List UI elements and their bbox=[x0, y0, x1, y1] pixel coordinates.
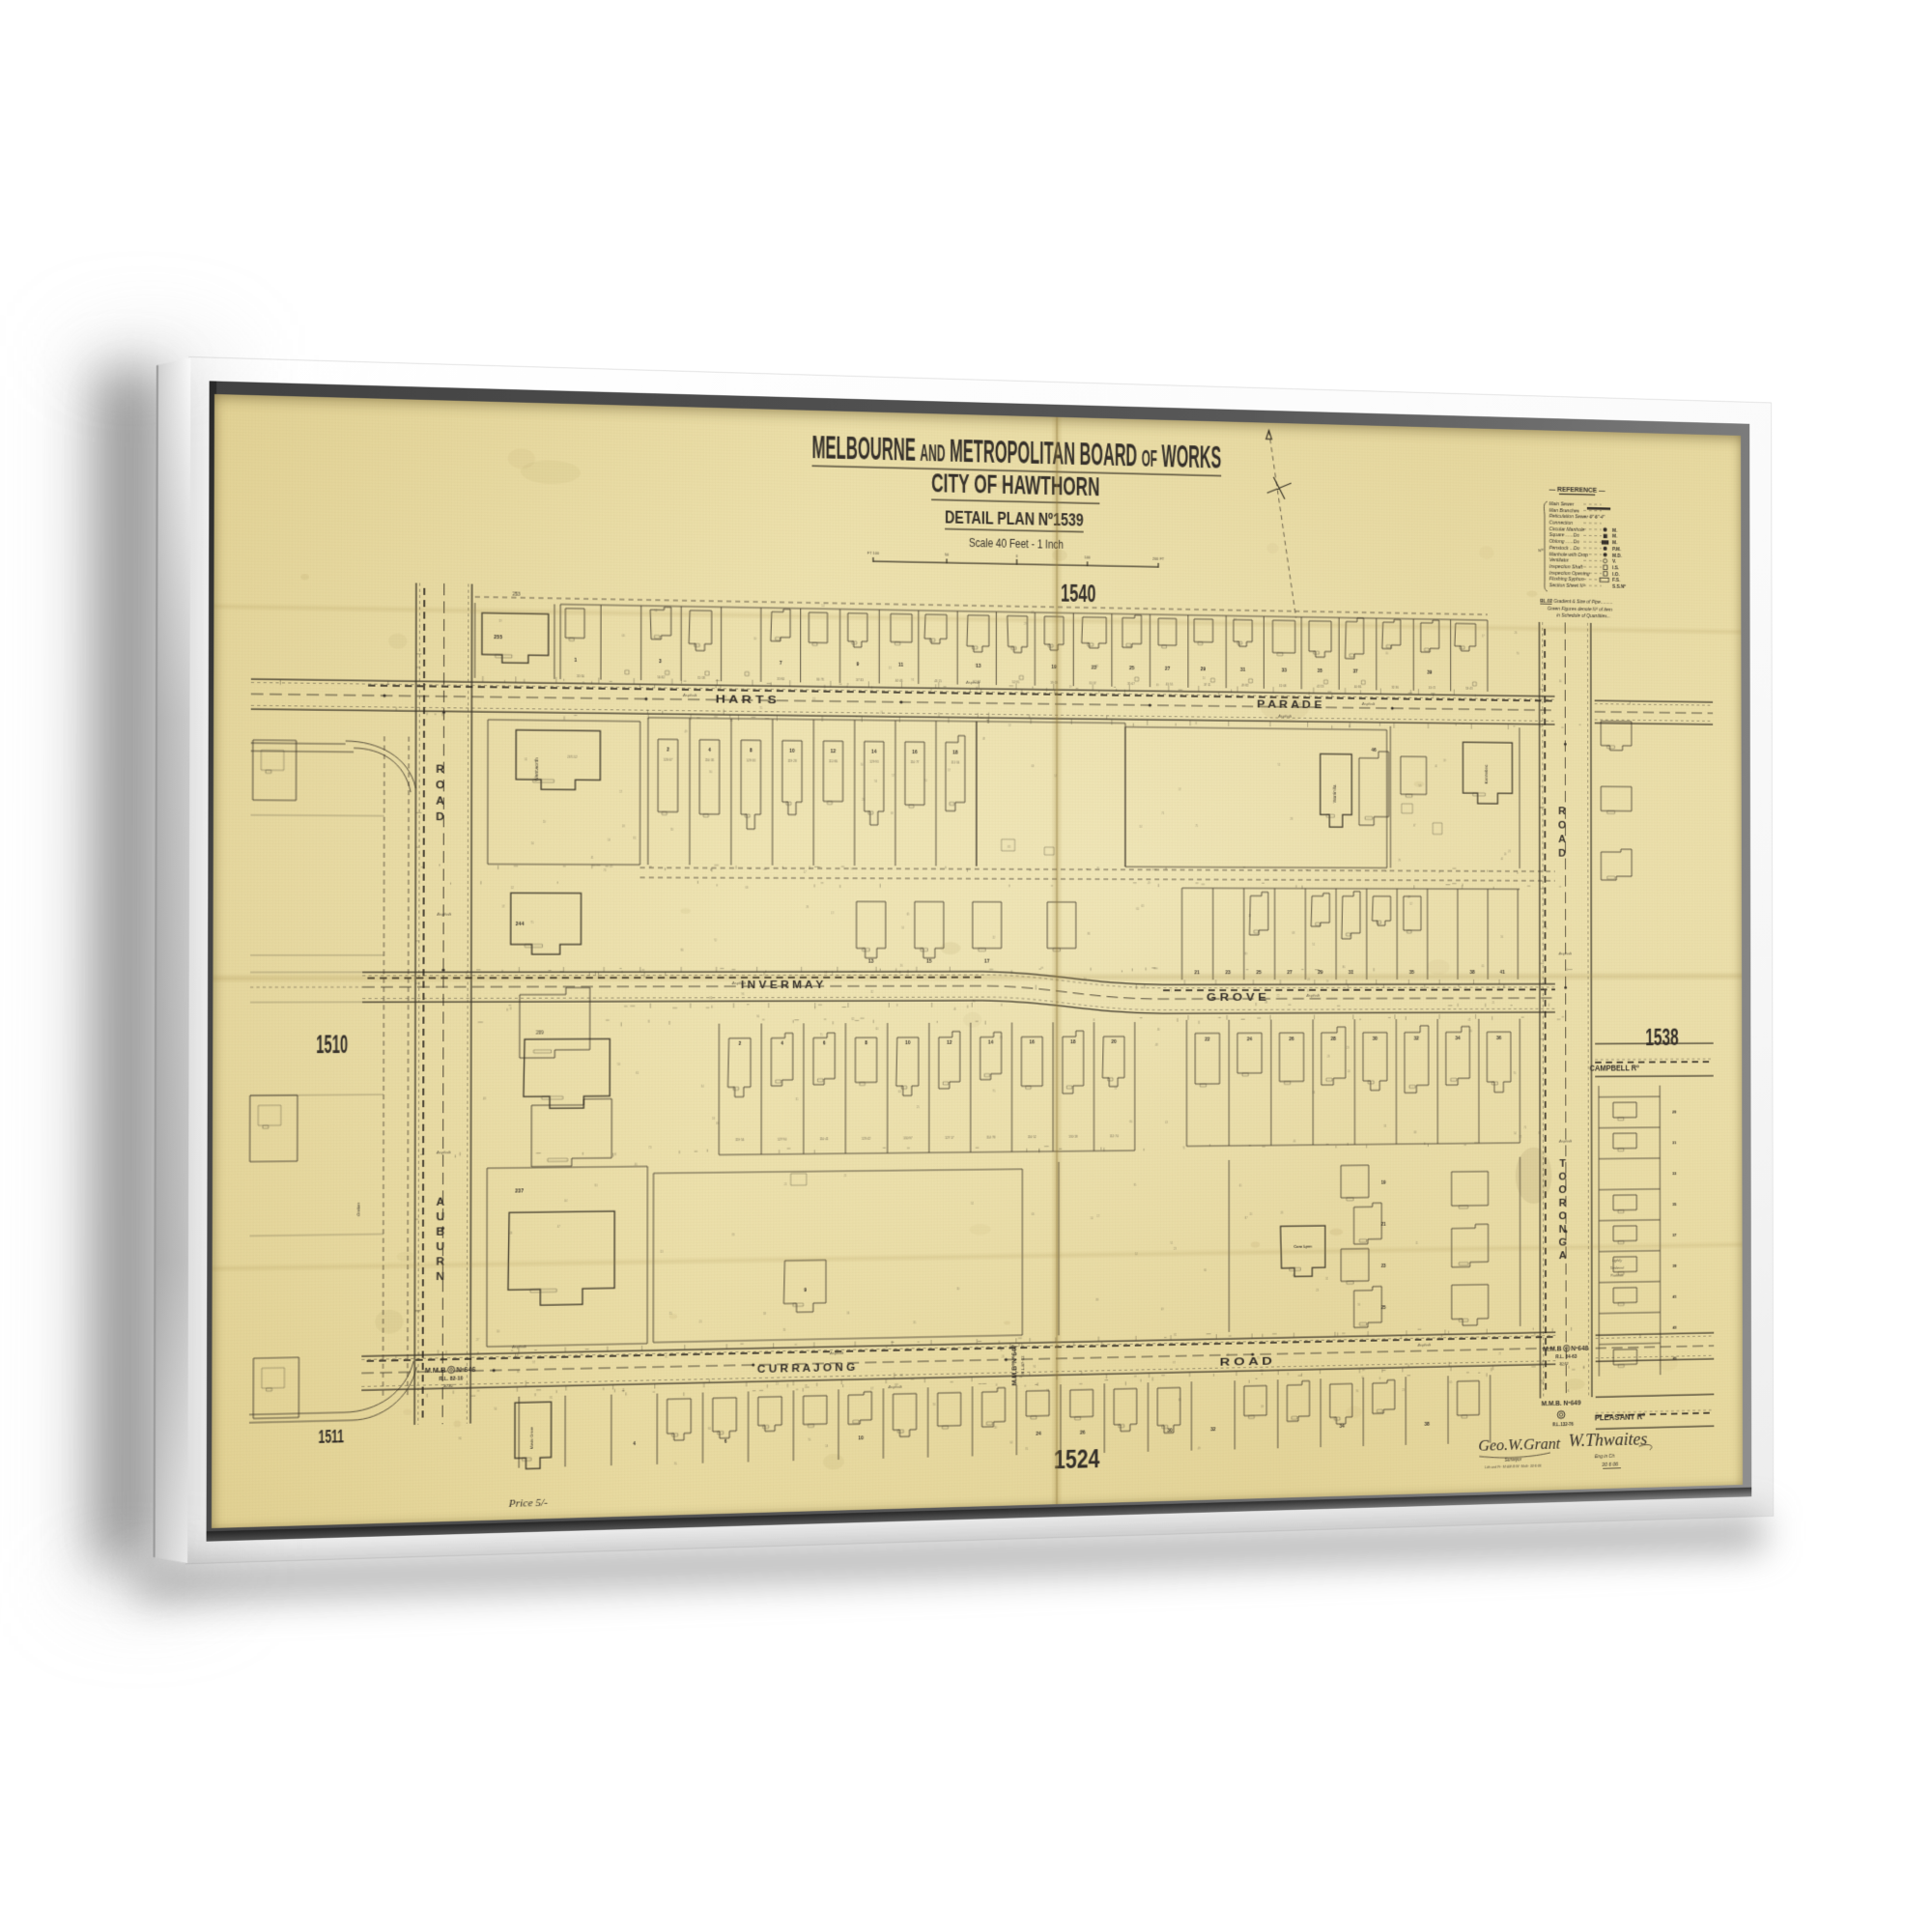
svg-text:30 41: 30 41 bbox=[443, 1383, 454, 1388]
svg-text:20: 20 bbox=[543, 820, 546, 824]
svg-text:34: 34 bbox=[1458, 984, 1461, 988]
svg-text:10: 10 bbox=[901, 926, 904, 930]
svg-text:G R O V E: G R O V E bbox=[1207, 991, 1266, 1004]
svg-text:11: 11 bbox=[1415, 1241, 1418, 1245]
svg-text:76: 76 bbox=[1025, 1447, 1028, 1451]
svg-text:19: 19 bbox=[975, 664, 978, 668]
svg-text:22: 22 bbox=[992, 936, 995, 940]
svg-text:116·33: 116·33 bbox=[705, 758, 715, 762]
svg-text:24: 24 bbox=[1037, 1432, 1041, 1437]
svg-text:32: 32 bbox=[525, 758, 527, 762]
svg-text:10: 10 bbox=[1091, 1216, 1094, 1220]
svg-text:46: 46 bbox=[1372, 748, 1377, 753]
svg-text:62: 62 bbox=[1298, 702, 1301, 706]
svg-text:59: 59 bbox=[1418, 784, 1421, 788]
svg-text:22: 22 bbox=[1508, 849, 1511, 853]
svg-text:C U R R A J O N G: C U R R A J O N G bbox=[757, 1360, 855, 1375]
svg-text:90: 90 bbox=[1033, 1365, 1036, 1369]
svg-text:35: 35 bbox=[1318, 668, 1322, 674]
svg-text:68: 68 bbox=[1292, 931, 1294, 935]
svg-text:27: 27 bbox=[1165, 667, 1170, 672]
svg-text:45: 45 bbox=[1672, 1356, 1677, 1361]
svg-text:89: 89 bbox=[1096, 1298, 1099, 1302]
svg-text:93: 93 bbox=[911, 678, 914, 682]
svg-text:31·37: 31·37 bbox=[1089, 682, 1096, 686]
svg-text:83: 83 bbox=[1008, 845, 1010, 849]
svg-text:48: 48 bbox=[982, 737, 985, 741]
svg-text:33: 33 bbox=[1672, 1171, 1677, 1176]
svg-text:71: 71 bbox=[1182, 1146, 1185, 1150]
svg-text:69: 69 bbox=[1161, 1307, 1164, 1311]
svg-text:R.L. 82-10: R.L. 82-10 bbox=[440, 1377, 464, 1382]
svg-text:80: 80 bbox=[1261, 1369, 1264, 1373]
svg-text:35: 35 bbox=[782, 1328, 785, 1332]
svg-text:in Schedule of Quantities...: in Schedule of Quantities... bbox=[1556, 613, 1610, 619]
svg-text:R: R bbox=[1558, 805, 1566, 817]
svg-text:44: 44 bbox=[994, 1426, 997, 1430]
svg-text:37: 37 bbox=[1353, 669, 1358, 675]
svg-text:59: 59 bbox=[499, 620, 502, 624]
svg-text:50: 50 bbox=[1385, 651, 1388, 655]
svg-text:43: 43 bbox=[1165, 1121, 1168, 1124]
svg-text:110·77: 110·77 bbox=[910, 760, 919, 764]
svg-text:Kennebec: Kennebec bbox=[1484, 764, 1489, 784]
svg-text:40: 40 bbox=[1500, 857, 1503, 861]
svg-text:29: 29 bbox=[1672, 1110, 1677, 1115]
svg-text:209: 209 bbox=[536, 1031, 544, 1037]
svg-text:Price 5/-: Price 5/- bbox=[508, 1496, 549, 1510]
svg-text:Asphalt: Asphalt bbox=[436, 1150, 451, 1154]
svg-text:10: 10 bbox=[1114, 1087, 1117, 1091]
svg-text:69: 69 bbox=[716, 1122, 719, 1125]
svg-text:127·94: 127·94 bbox=[778, 1138, 787, 1142]
svg-text:237: 237 bbox=[515, 1189, 524, 1195]
svg-text:Grattan: Grattan bbox=[355, 1202, 360, 1215]
svg-text:50: 50 bbox=[497, 1330, 499, 1334]
svg-text:119·56: 119·56 bbox=[735, 1138, 744, 1142]
svg-text:CAMPBELL Rº: CAMPBELL Rº bbox=[1590, 1064, 1640, 1072]
svg-text:0: 0 bbox=[1015, 554, 1018, 558]
svg-text:Warrinilla: Warrinilla bbox=[1332, 784, 1337, 803]
svg-text:M.: M. bbox=[1612, 528, 1618, 534]
svg-text:32: 32 bbox=[511, 886, 514, 890]
svg-text:DETAIL PLAN Nº1539: DETAIL PLAN Nº1539 bbox=[945, 507, 1084, 530]
svg-text:M.M.B: M.M.B bbox=[425, 1366, 446, 1375]
svg-text:52: 52 bbox=[971, 1202, 974, 1206]
svg-text:100: 100 bbox=[1084, 555, 1091, 560]
svg-text:13: 13 bbox=[889, 666, 892, 669]
svg-text:21: 21 bbox=[1492, 1002, 1494, 1006]
svg-text:51: 51 bbox=[1312, 943, 1315, 947]
svg-text:60: 60 bbox=[875, 1028, 878, 1032]
svg-text:17: 17 bbox=[1096, 1214, 1099, 1218]
svg-text:Nº646: Nº646 bbox=[456, 1365, 475, 1374]
svg-text:30: 30 bbox=[1373, 1037, 1378, 1042]
svg-text:124·67: 124·67 bbox=[664, 758, 673, 762]
svg-text:37: 37 bbox=[502, 905, 505, 909]
svg-text:7: 7 bbox=[780, 661, 782, 667]
svg-text:67: 67 bbox=[870, 1387, 873, 1391]
svg-text:50: 50 bbox=[494, 1407, 497, 1411]
svg-text:10: 10 bbox=[859, 1435, 865, 1441]
svg-text:Geo.W.Grant: Geo.W.Grant bbox=[1478, 1435, 1561, 1455]
svg-text:97: 97 bbox=[580, 1353, 582, 1357]
svg-text:33: 33 bbox=[1545, 926, 1548, 930]
svg-text:95: 95 bbox=[1133, 1183, 1136, 1187]
svg-text:56: 56 bbox=[1500, 935, 1503, 939]
svg-text:86: 86 bbox=[1343, 965, 1346, 969]
svg-text:33: 33 bbox=[1383, 1124, 1386, 1128]
svg-text:97: 97 bbox=[1173, 1361, 1176, 1365]
svg-text:116·52: 116·52 bbox=[1028, 1135, 1037, 1139]
svg-text:50: 50 bbox=[861, 763, 864, 767]
svg-text:112·74: 112·74 bbox=[1110, 1134, 1119, 1138]
svg-text:24: 24 bbox=[1327, 1055, 1330, 1059]
svg-text:44: 44 bbox=[1000, 1349, 1003, 1352]
svg-text:60: 60 bbox=[708, 1427, 711, 1431]
svg-text:B: B bbox=[436, 1225, 444, 1238]
svg-text:CITY OF HAWTHORN: CITY OF HAWTHORN bbox=[931, 469, 1099, 502]
svg-text:18: 18 bbox=[825, 1445, 828, 1449]
svg-text:66: 66 bbox=[622, 635, 625, 639]
svg-text:A: A bbox=[1558, 833, 1566, 845]
svg-text:24: 24 bbox=[1348, 1069, 1350, 1073]
svg-text:Asphalt: Asphalt bbox=[1558, 952, 1573, 956]
svg-text:31·68: 31·68 bbox=[1279, 684, 1287, 688]
svg-text:N: N bbox=[1559, 1223, 1567, 1236]
svg-text:72: 72 bbox=[1498, 1352, 1501, 1356]
svg-text:64: 64 bbox=[1009, 1440, 1012, 1444]
svg-text:32: 32 bbox=[1210, 1427, 1215, 1433]
svg-text:Asphalt: Asphalt bbox=[682, 693, 697, 697]
svg-text:45: 45 bbox=[1293, 1273, 1295, 1277]
svg-text:70: 70 bbox=[808, 1438, 810, 1442]
svg-text:86: 86 bbox=[709, 996, 712, 1000]
svg-text:Green Figures denote Nº of ite: Green Figures denote Nº of item bbox=[1548, 607, 1613, 613]
svg-text:27: 27 bbox=[1482, 635, 1485, 639]
svg-text:6: 6 bbox=[823, 1041, 826, 1047]
svg-text:111·34: 111·34 bbox=[951, 761, 959, 765]
svg-text:13: 13 bbox=[812, 696, 815, 700]
svg-text:66: 66 bbox=[724, 695, 726, 698]
svg-text:Nº648: Nº648 bbox=[1571, 1344, 1588, 1352]
svg-text:81: 81 bbox=[665, 1355, 668, 1359]
svg-text:P A R A D E: P A R A D E bbox=[1257, 697, 1321, 711]
svg-text:21: 21 bbox=[784, 1182, 787, 1186]
svg-text:O: O bbox=[1558, 818, 1566, 831]
svg-text:68: 68 bbox=[1414, 1131, 1417, 1135]
svg-text:31·38: 31·38 bbox=[697, 676, 705, 680]
svg-text:90: 90 bbox=[1356, 1390, 1359, 1394]
svg-text:66: 66 bbox=[1204, 1268, 1207, 1272]
svg-text:16: 16 bbox=[1030, 1040, 1035, 1046]
svg-text:16: 16 bbox=[1469, 1030, 1472, 1034]
svg-text:32: 32 bbox=[1325, 1277, 1328, 1281]
svg-text:88: 88 bbox=[1264, 1001, 1267, 1005]
svg-text:Lith·and Pr· M·&M·B·W· Melb· 3: Lith·and Pr· M·&M·B·W· Melb· 30·6·06 bbox=[1485, 1464, 1542, 1469]
svg-text:32: 32 bbox=[870, 990, 873, 994]
svg-text:8: 8 bbox=[865, 1040, 867, 1046]
svg-text:48: 48 bbox=[483, 1096, 486, 1100]
svg-text:29: 29 bbox=[1201, 667, 1206, 672]
svg-text:16: 16 bbox=[1504, 852, 1507, 856]
svg-text:14: 14 bbox=[871, 750, 877, 755]
svg-text:78: 78 bbox=[806, 905, 809, 909]
svg-text:52·95: 52·95 bbox=[1012, 681, 1020, 685]
svg-text:18: 18 bbox=[1070, 1039, 1075, 1045]
svg-text:Connection: Connection bbox=[1549, 521, 1574, 526]
svg-text:77: 77 bbox=[1519, 1136, 1521, 1140]
svg-text:53: 53 bbox=[660, 1250, 663, 1254]
svg-text:75: 75 bbox=[992, 1090, 995, 1094]
svg-text:24: 24 bbox=[862, 798, 865, 802]
svg-text:30 62: 30 62 bbox=[1559, 1361, 1569, 1366]
svg-text:123·42: 123·42 bbox=[862, 1137, 871, 1141]
svg-text:1: 1 bbox=[574, 658, 577, 664]
svg-text:37: 37 bbox=[1672, 1233, 1677, 1237]
svg-text:114·78: 114·78 bbox=[986, 1136, 995, 1140]
svg-text:38: 38 bbox=[763, 1312, 766, 1316]
svg-text:96: 96 bbox=[756, 1015, 759, 1019]
svg-text:Asphalt: Asphalt bbox=[1361, 701, 1376, 706]
svg-text:31: 31 bbox=[1240, 668, 1245, 673]
svg-text:75: 75 bbox=[759, 707, 762, 711]
svg-text:FT 100: FT 100 bbox=[867, 551, 880, 555]
svg-text:77: 77 bbox=[1169, 989, 1172, 993]
svg-text:18: 18 bbox=[952, 751, 957, 756]
svg-text:— REFERENCE —: — REFERENCE — bbox=[1549, 484, 1605, 495]
svg-text:30: 30 bbox=[670, 828, 673, 832]
svg-text:43·15: 43·15 bbox=[934, 679, 942, 683]
svg-text:35: 35 bbox=[913, 1321, 916, 1325]
svg-text:99: 99 bbox=[1307, 989, 1310, 993]
svg-text:81: 81 bbox=[633, 837, 636, 840]
svg-text:2: 2 bbox=[667, 748, 669, 753]
svg-text:95: 95 bbox=[674, 1463, 677, 1466]
svg-text:28: 28 bbox=[1331, 1037, 1336, 1042]
svg-text:83: 83 bbox=[1542, 1381, 1545, 1385]
svg-text:247-52: 247-52 bbox=[567, 755, 577, 759]
svg-text:47: 47 bbox=[557, 1225, 560, 1229]
svg-text:34: 34 bbox=[1456, 1037, 1461, 1042]
svg-text:PLEASANT Rº: PLEASANT Rº bbox=[1595, 1412, 1646, 1423]
svg-text:54: 54 bbox=[617, 1063, 620, 1066]
svg-text:56: 56 bbox=[1357, 1302, 1360, 1306]
svg-text:18: 18 bbox=[1248, 914, 1251, 918]
svg-text:25: 25 bbox=[917, 1105, 920, 1109]
svg-text:93: 93 bbox=[594, 1184, 597, 1188]
svg-text:I.S.: I.S. bbox=[1612, 566, 1619, 572]
svg-text:Asphalt: Asphalt bbox=[511, 1344, 526, 1349]
svg-text:R.L.132-76: R.L.132-76 bbox=[1552, 1422, 1574, 1428]
svg-text:51: 51 bbox=[1278, 763, 1281, 767]
svg-text:255: 255 bbox=[494, 635, 502, 640]
svg-text:Mavis Grove: Mavis Grove bbox=[529, 1426, 534, 1449]
svg-text:130·97: 130·97 bbox=[903, 1137, 913, 1141]
svg-text:R O A D: R O A D bbox=[1220, 1354, 1273, 1368]
svg-text:14: 14 bbox=[608, 838, 611, 842]
svg-text:57: 57 bbox=[892, 774, 895, 778]
svg-text:75: 75 bbox=[1161, 811, 1164, 815]
svg-text:1538: 1538 bbox=[1645, 1023, 1678, 1050]
svg-text:96: 96 bbox=[741, 992, 744, 996]
svg-text:32·36: 32·36 bbox=[1391, 686, 1398, 690]
svg-text:12: 12 bbox=[947, 1040, 952, 1046]
svg-text:90: 90 bbox=[459, 1437, 462, 1441]
svg-text:44: 44 bbox=[564, 1200, 567, 1204]
svg-text:72: 72 bbox=[714, 939, 717, 943]
svg-text:14: 14 bbox=[988, 1040, 993, 1046]
svg-text:70: 70 bbox=[973, 999, 976, 1003]
svg-text:23: 23 bbox=[1316, 1289, 1319, 1293]
svg-text:Surveyor: Surveyor bbox=[1505, 1458, 1522, 1463]
svg-text:33: 33 bbox=[847, 1312, 850, 1316]
svg-text:21: 21 bbox=[699, 1320, 702, 1323]
svg-text:75: 75 bbox=[1523, 1126, 1526, 1130]
svg-text:13: 13 bbox=[1313, 1091, 1316, 1094]
svg-text:32: 32 bbox=[1414, 1037, 1419, 1042]
svg-text:10: 10 bbox=[1249, 1213, 1252, 1217]
svg-text:129·93: 129·93 bbox=[869, 760, 879, 764]
svg-text:77: 77 bbox=[1543, 1137, 1546, 1141]
svg-text:25: 25 bbox=[1129, 666, 1134, 671]
svg-text:54: 54 bbox=[1139, 825, 1142, 829]
svg-text:BL.02: BL.02 bbox=[1540, 599, 1552, 605]
svg-text:47: 47 bbox=[1413, 824, 1416, 828]
svg-text:18: 18 bbox=[712, 1117, 715, 1121]
svg-text:35: 35 bbox=[1672, 1202, 1677, 1207]
svg-text:86: 86 bbox=[1088, 932, 1091, 936]
svg-text:Nºº: Nºº bbox=[1539, 549, 1545, 554]
svg-text:U: U bbox=[436, 1239, 444, 1253]
svg-text:41: 41 bbox=[591, 856, 594, 860]
svg-text:111·86: 111·86 bbox=[829, 759, 838, 763]
svg-text:75: 75 bbox=[530, 922, 533, 925]
svg-text:82: 82 bbox=[1174, 1333, 1177, 1337]
svg-text:78: 78 bbox=[731, 1234, 734, 1237]
svg-text:6: 6 bbox=[724, 1439, 727, 1445]
svg-text:43: 43 bbox=[1672, 1325, 1677, 1330]
svg-text:O: O bbox=[1559, 1209, 1567, 1222]
svg-text:Wentworth: Wentworth bbox=[534, 757, 540, 781]
svg-text:17: 17 bbox=[619, 790, 622, 794]
svg-text:22: 22 bbox=[1205, 1037, 1209, 1043]
svg-text:36: 36 bbox=[730, 719, 733, 723]
svg-text:O: O bbox=[1558, 1183, 1566, 1196]
svg-text:3: 3 bbox=[659, 659, 662, 665]
svg-text:F.S.: F.S. bbox=[1612, 579, 1620, 584]
svg-text:127·17: 127·17 bbox=[945, 1136, 954, 1140]
svg-text:17: 17 bbox=[831, 912, 834, 916]
svg-text:23: 23 bbox=[1002, 1354, 1005, 1358]
svg-text:64: 64 bbox=[1136, 907, 1139, 911]
svg-text:74: 74 bbox=[924, 779, 927, 782]
svg-text:O: O bbox=[1558, 1170, 1566, 1182]
svg-text:38: 38 bbox=[1425, 1422, 1430, 1428]
svg-text:Oblong ......Do: Oblong ......Do bbox=[1549, 539, 1579, 545]
svg-text:Circular Manhole: Circular Manhole bbox=[1549, 526, 1585, 532]
svg-text:Eng in Ch: Eng in Ch bbox=[1595, 1454, 1615, 1460]
svg-text:89: 89 bbox=[1156, 683, 1159, 687]
svg-text:61: 61 bbox=[900, 1374, 903, 1378]
svg-text:52·54: 52·54 bbox=[973, 680, 980, 684]
svg-text:57: 57 bbox=[804, 870, 807, 874]
svg-text:M.M.B. Nº649: M.M.B. Nº649 bbox=[1542, 1399, 1581, 1407]
svg-text:M.: M. bbox=[1612, 541, 1618, 547]
svg-text:Asphalt: Asphalt bbox=[1417, 1343, 1432, 1348]
svg-text:84: 84 bbox=[1129, 1120, 1132, 1123]
svg-text:76: 76 bbox=[1398, 859, 1401, 863]
svg-text:25: 25 bbox=[1381, 1305, 1386, 1311]
svg-text:10: 10 bbox=[1203, 677, 1206, 681]
svg-text:65: 65 bbox=[1449, 1380, 1452, 1384]
svg-text:72: 72 bbox=[843, 1174, 846, 1178]
svg-text:49: 49 bbox=[1148, 882, 1151, 886]
svg-text:23: 23 bbox=[776, 1382, 779, 1386]
svg-text:57: 57 bbox=[948, 769, 951, 773]
svg-text:72: 72 bbox=[1277, 994, 1280, 998]
svg-text:70: 70 bbox=[1517, 652, 1520, 656]
svg-text:Asphalt: Asphalt bbox=[1277, 714, 1292, 719]
svg-text:81: 81 bbox=[1539, 1131, 1542, 1135]
svg-text:89: 89 bbox=[1244, 952, 1247, 956]
svg-text:53·43: 53·43 bbox=[1465, 687, 1472, 691]
svg-text:40: 40 bbox=[1227, 1352, 1230, 1356]
svg-text:Manhole with Drop: Manhole with Drop bbox=[1549, 552, 1588, 557]
svg-text:35·67: 35·67 bbox=[1127, 682, 1135, 686]
svg-text:63: 63 bbox=[898, 1090, 901, 1094]
svg-text:Ventilator: Ventilator bbox=[1549, 558, 1570, 564]
svg-text:53: 53 bbox=[1046, 1388, 1049, 1392]
svg-text:54: 54 bbox=[1514, 1132, 1517, 1136]
svg-text:78: 78 bbox=[932, 1404, 935, 1407]
svg-text:44·46: 44·46 bbox=[895, 679, 903, 683]
svg-text:23: 23 bbox=[1347, 1046, 1350, 1050]
svg-text:43·55: 43·55 bbox=[1166, 683, 1174, 687]
svg-text:65: 65 bbox=[906, 912, 909, 916]
svg-text:Scale 40 Feet - 1 Inch: Scale 40 Feet - 1 Inch bbox=[969, 536, 1064, 553]
svg-text:37·33: 37·33 bbox=[856, 678, 864, 682]
svg-text:19: 19 bbox=[1069, 686, 1072, 690]
svg-text:13: 13 bbox=[868, 959, 874, 965]
svg-text:36: 36 bbox=[1496, 1036, 1501, 1041]
svg-text:18: 18 bbox=[1261, 1406, 1264, 1409]
svg-text:Timbered: Timbered bbox=[1610, 1266, 1625, 1270]
svg-text:2: 2 bbox=[738, 1041, 741, 1047]
svg-text:Gradient & Size of Pipe.......: Gradient & Size of Pipe.......... bbox=[1553, 599, 1612, 606]
svg-text:30: 30 bbox=[1167, 1429, 1172, 1435]
svg-text:23: 23 bbox=[1381, 1264, 1386, 1269]
svg-text:36: 36 bbox=[517, 1370, 520, 1374]
svg-text:76: 76 bbox=[1514, 1071, 1517, 1075]
svg-text:19: 19 bbox=[1381, 1180, 1386, 1186]
svg-text:81: 81 bbox=[1179, 1399, 1181, 1403]
svg-text:34: 34 bbox=[701, 1084, 704, 1088]
svg-text:39: 39 bbox=[1672, 1264, 1677, 1268]
svg-text:63: 63 bbox=[1141, 904, 1144, 908]
svg-text:244: 244 bbox=[516, 922, 525, 927]
svg-text:Asphalt: Asphalt bbox=[888, 1384, 903, 1389]
svg-text:15: 15 bbox=[669, 1312, 672, 1316]
svg-text:49·82: 49·82 bbox=[1241, 684, 1249, 688]
svg-text:49: 49 bbox=[1407, 895, 1410, 899]
svg-text:9: 9 bbox=[857, 662, 860, 668]
svg-text:34: 34 bbox=[1559, 679, 1562, 683]
svg-text:21: 21 bbox=[1381, 1222, 1386, 1228]
svg-text:49: 49 bbox=[509, 1232, 512, 1236]
svg-text:81: 81 bbox=[1567, 1389, 1570, 1393]
svg-text:31: 31 bbox=[796, 1097, 799, 1101]
